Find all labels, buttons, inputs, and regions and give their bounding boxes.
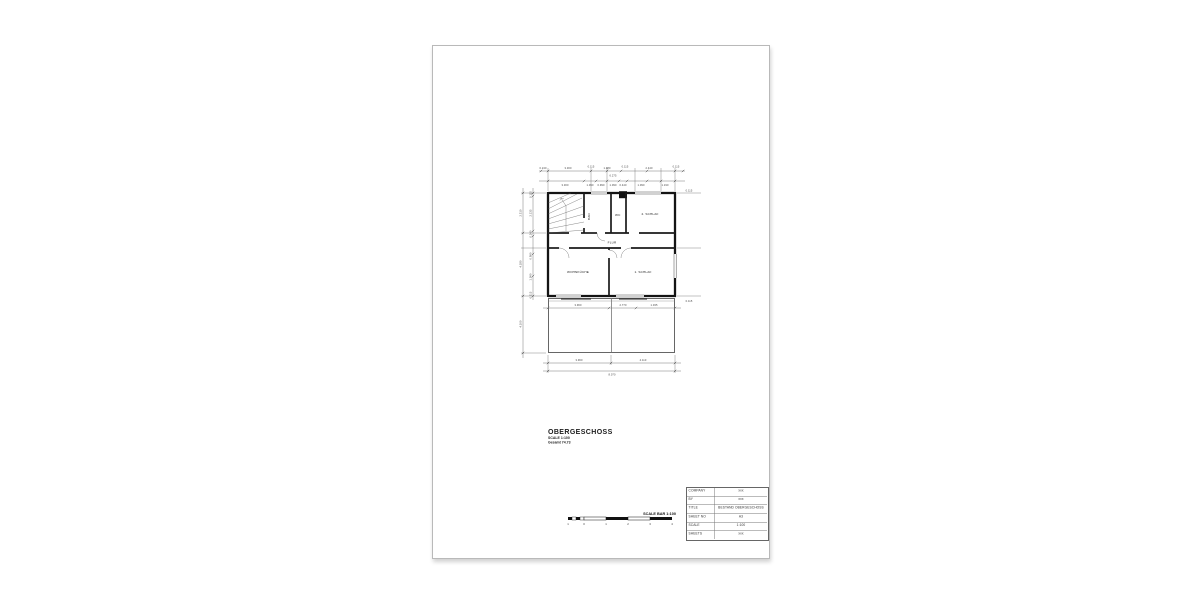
dimension-label: 0.240 [540, 166, 547, 170]
title-block-value: xxx [715, 497, 767, 505]
dimension-label: 2.440 [646, 166, 653, 170]
dimension-label: 1.090 [587, 183, 594, 187]
dimension-label: 3.960 [576, 358, 583, 362]
room-label-kitchen: WOHNKÜCHE [567, 270, 589, 274]
title-block: COMPANY xxx BY xxx TITLE BESTAND OBERGES… [686, 487, 769, 541]
scale-bar-ticks: 1 0 1 2 3 4 [567, 522, 673, 526]
dimension-chain-inner-bottom: 3.960 2.770 1.035 [543, 303, 681, 309]
title-block-label: COMPANY [687, 488, 715, 496]
scale-bar-segments [568, 517, 672, 520]
scale-bar-label: SCALE BAR 1:100 [643, 512, 676, 516]
scale-tick-label: 3 [649, 522, 651, 526]
dimension-label: 0.115 [622, 165, 629, 169]
title-block-row: SHEETS xxx [687, 531, 767, 539]
title-block-label: SCALE [687, 522, 715, 530]
drawing-title-text: OBERGESCHOSS [548, 429, 748, 436]
scale-tick-label: 1 [567, 522, 569, 526]
dimension-label: 2.770 [620, 303, 627, 307]
dimension-labels-right: 0.115 0.115 [686, 189, 693, 304]
dimension-label: 0.115 [673, 165, 680, 169]
dimension-label: 0.115 [588, 165, 595, 169]
title-block-row: BY xxx [687, 497, 767, 506]
room-label-bedroom1: 1. SCHLAF [635, 270, 652, 274]
title-block-value: xxx [715, 531, 767, 539]
room-label-bath: BAD [587, 213, 591, 220]
scale-tick-label: 0 [583, 522, 585, 526]
dimension-label: 1.190 [662, 183, 669, 187]
dimension-label: 1.090 [529, 273, 533, 280]
dimension-label: 4.100 [519, 320, 523, 327]
title-block-row: TITLE BESTAND OBERGESCHOSS [687, 505, 767, 514]
room-label-bedroom2: 2. SCHLAF [642, 212, 659, 216]
dimension-label: 2.310 [519, 209, 523, 216]
dimension-label: 6.275 [610, 174, 617, 178]
dimension-label: 1.090 [638, 183, 645, 187]
dimension-label: 3.300 [565, 166, 572, 170]
dimension-label: 4.110 [640, 358, 647, 362]
dimension-label: 1.035 [651, 303, 658, 307]
dimension-label: 0.240 [529, 230, 533, 237]
drawing-area-note: Gesamt 74.73 [548, 441, 648, 446]
title-block-value: xxx [715, 488, 767, 496]
dimension-chain-bottom: 3.960 4.110 8.070 [543, 358, 681, 377]
dimension-label: 0.990 [598, 183, 605, 187]
screenshot-canvas: 0.240 3.300 0.115 1.980 0.115 2.440 0.11… [0, 0, 1200, 600]
title-block-value: 1:100 [715, 522, 767, 530]
scale-bar: SCALE BAR 1:100 1 0 1 2 3 4 [566, 510, 691, 532]
title-block-row: COMPANY xxx [687, 488, 767, 497]
dimension-label: 0.115 [529, 191, 533, 198]
title-block-label: TITLE [687, 505, 715, 513]
dimension-label: 0.440 [620, 183, 627, 187]
scale-tick-label: 2 [627, 522, 629, 526]
dimension-label: 8.070 [609, 373, 616, 377]
scale-tick-label: 1 [605, 522, 607, 526]
drawing-title: OBERGESCHOSS SCALE 1:100 Gesamt 74.73 [548, 429, 748, 454]
dimension-chain-top-2: 6.275 3.300 1.090 0.990 1.090 0.440 1.09… [539, 174, 685, 188]
dimension-label: 0.115 [529, 291, 533, 298]
dimension-chain-top-1: 0.240 3.300 0.115 1.980 0.115 2.440 0.11… [539, 165, 685, 173]
floor-plan: 0.240 3.300 0.115 1.980 0.115 2.440 0.11… [501, 146, 711, 381]
scale-tick-label: 4 [671, 522, 673, 526]
staircase [548, 193, 584, 233]
title-block-label: BY [687, 497, 715, 505]
room-label-wc: WC [615, 213, 621, 217]
title-block-row: SCALE 1:100 [687, 522, 767, 531]
title-block-label: SHEETS [687, 531, 715, 539]
title-block-value: A3 [715, 514, 767, 522]
dimension-label: 4.180 [519, 260, 523, 267]
interior-walls [548, 193, 675, 296]
dimension-label: 0.115 [686, 189, 693, 193]
dimension-label: 0.990 [529, 252, 533, 259]
drawing-sheet: 0.240 3.300 0.115 1.980 0.115 2.440 0.11… [432, 45, 770, 559]
title-block-value: BESTAND OBERGESCHOSS [715, 505, 767, 513]
title-block-row: SHEET NO A3 [687, 514, 767, 523]
title-block-label: SHEET NO [687, 514, 715, 522]
room-labels: BAD WC 2. SCHLAF FLUR WOHNKÜCHE 1. SCHLA… [567, 212, 658, 274]
room-label-hall: FLUR [608, 241, 617, 245]
dimension-label: 3.960 [575, 303, 582, 307]
dimension-label: 3.300 [562, 183, 569, 187]
dimension-label: 1.090 [610, 183, 617, 187]
dimension-label: 1.980 [604, 166, 611, 170]
dimension-chain-left: 2.310 4.180 4.100 0.115 2.135 0.240 0.99… [519, 188, 535, 358]
dimension-label: 0.115 [686, 299, 693, 303]
dimension-label: 2.135 [529, 209, 533, 216]
